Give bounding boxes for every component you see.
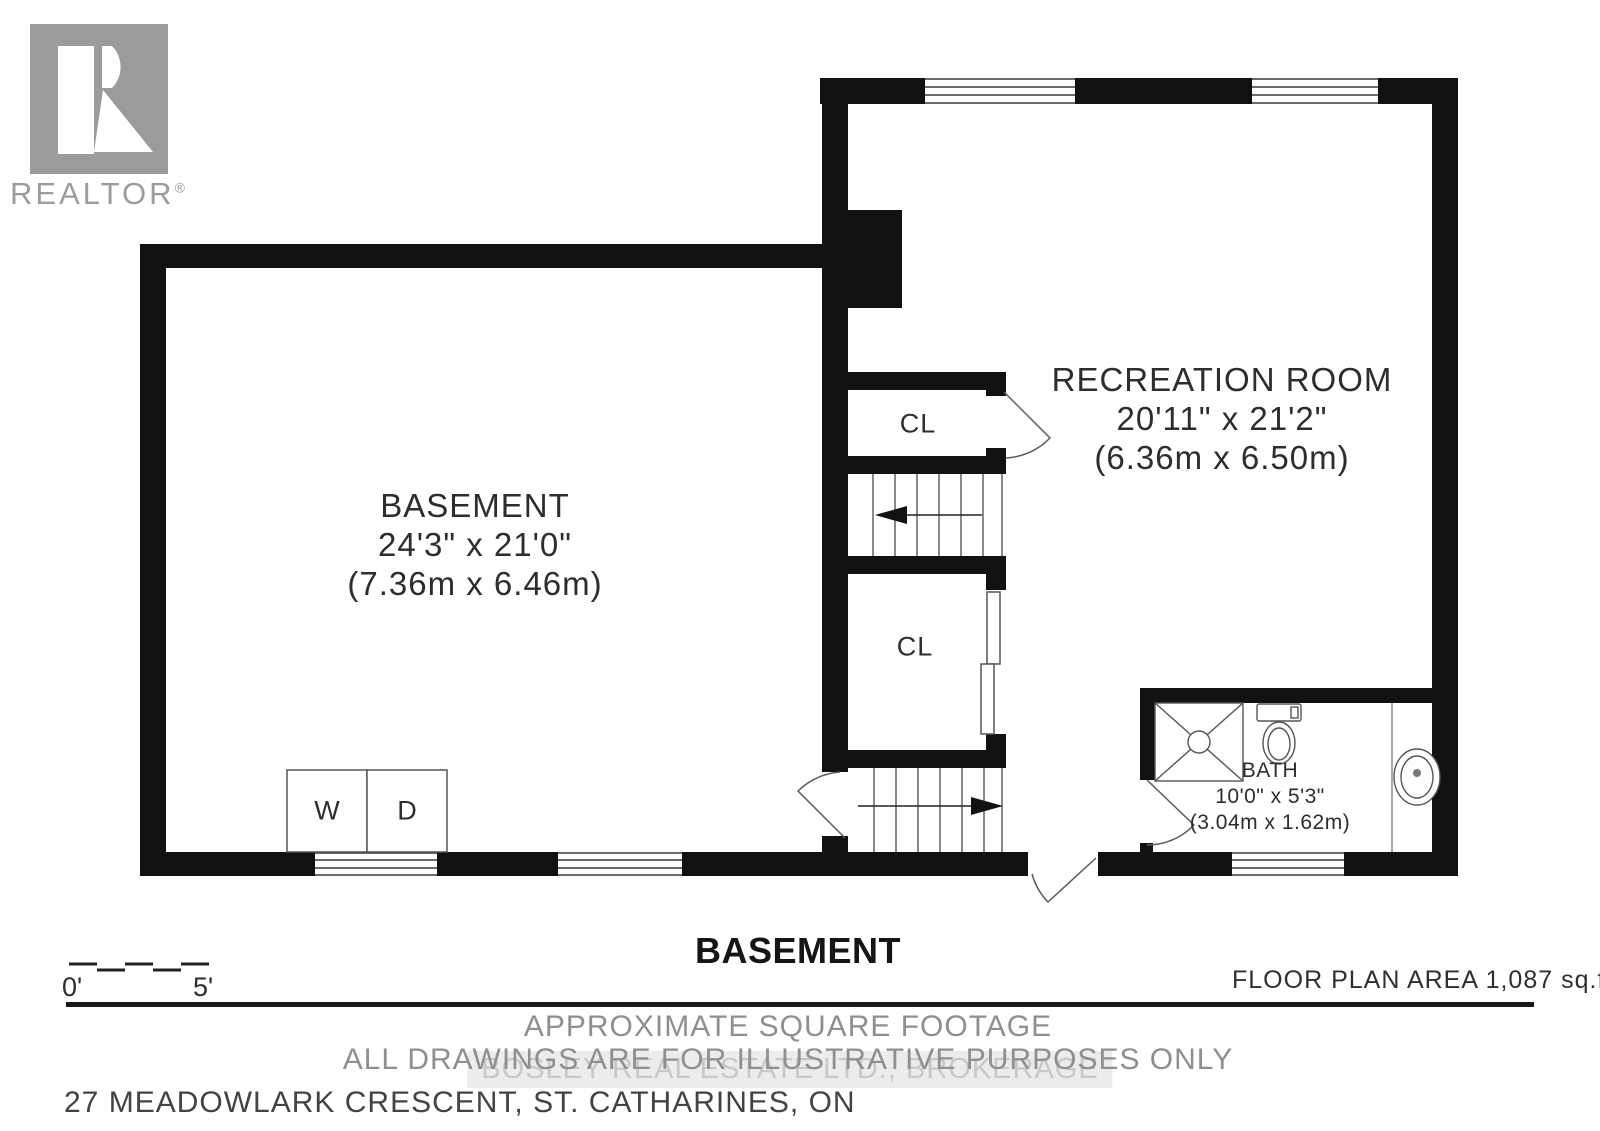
realtor-logo-icon: [30, 24, 168, 174]
lower-closet-label: CL: [897, 632, 934, 663]
lower-closet-door: [981, 592, 1000, 734]
recreation-room-name: RECREATION ROOM: [1052, 360, 1393, 399]
door-upper-closet: [1004, 392, 1050, 458]
floor-plan-area-label: FLOOR PLAN AREA 1,087 sq.ft.: [1232, 966, 1600, 995]
scale-bar: [69, 964, 209, 970]
stairs-upper: [873, 474, 1002, 556]
scale-end-label: 5': [193, 972, 213, 1003]
window-basement-left: [315, 852, 437, 876]
window-rec-top-right: [1252, 78, 1378, 104]
recreation-room-dims-imperial: 20'11" x 21'2": [1052, 399, 1393, 438]
basement-room-name: BASEMENT: [347, 486, 602, 525]
bath-room-dims-metric: (3.04m x 1.62m): [1190, 810, 1350, 836]
footer-rule: [66, 1002, 1534, 1007]
recreation-room-label: RECREATION ROOM 20'11" x 21'2" (6.36m x …: [1052, 360, 1393, 477]
upper-closet-label: CL: [900, 409, 937, 440]
basement-room-dims-imperial: 24'3" x 21'0": [347, 525, 602, 564]
stairs-lower: [858, 768, 1003, 852]
registered-mark: ®: [175, 180, 188, 196]
property-address: 27 MEADOWLARK CRESCENT, ST. CATHARINES, …: [64, 1086, 856, 1120]
washer-label: W: [314, 796, 339, 827]
recreation-room-dims-metric: (6.36m x 6.50m): [1052, 438, 1393, 477]
floor-plan-page: REALTOR® BASEMENT 24'3" x 21'0" (7.36m x…: [0, 0, 1600, 1131]
window-basement-right: [558, 852, 682, 876]
stairs-upper-arrow-icon: [875, 506, 907, 524]
dryer-label: D: [397, 796, 417, 827]
toilet-icon: [1257, 704, 1301, 764]
door-bath: [1147, 780, 1194, 845]
bath-room-dims-imperial: 10'0" x 5'3": [1190, 784, 1350, 810]
window-rec-top-left: [925, 78, 1075, 104]
laundry-units: [287, 770, 447, 852]
disclaimer-line2: ALL DRAWINGS ARE FOR ILLUSTRATIVE PURPOS…: [343, 1043, 1234, 1077]
basement-room-label: BASEMENT 24'3" x 21'0" (7.36m x 6.46m): [347, 486, 602, 603]
exterior-door-gap: [1028, 852, 1098, 876]
floor-title: BASEMENT: [695, 930, 901, 972]
disclaimer-line1: APPROXIMATE SQUARE FOOTAGE: [524, 1010, 1052, 1044]
bath-room-label: BATH 10'0" x 5'3" (3.04m x 1.62m): [1190, 758, 1350, 836]
realtor-logo-text: REALTOR®: [10, 176, 188, 212]
stairs-lower-arrow-icon: [971, 797, 1003, 815]
bath-room-name: BATH: [1190, 758, 1350, 784]
scale-start-label: 0': [62, 972, 82, 1003]
window-bath: [1232, 852, 1344, 876]
basement-room-dims-metric: (7.36m x 6.46m): [347, 564, 602, 603]
door-basement: [798, 772, 845, 838]
walls: [140, 78, 1458, 876]
